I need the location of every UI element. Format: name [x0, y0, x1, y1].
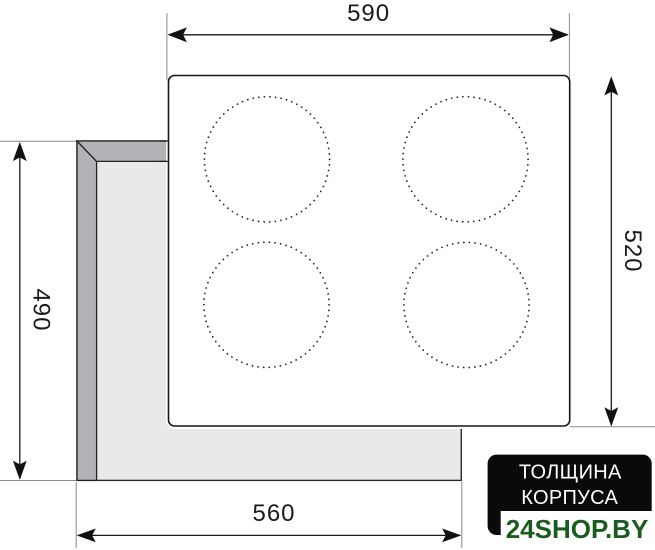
svg-text:490: 490 — [28, 288, 55, 331]
svg-text:520: 520 — [619, 229, 646, 272]
svg-text:ТОЛЩИНА: ТОЛЩИНА — [519, 462, 622, 484]
svg-text:24SHOP.BY: 24SHOP.BY — [506, 514, 649, 544]
svg-text:590: 590 — [347, 0, 390, 27]
svg-text:560: 560 — [252, 500, 295, 527]
svg-text:КОРПУСА: КОРПУСА — [521, 487, 618, 509]
